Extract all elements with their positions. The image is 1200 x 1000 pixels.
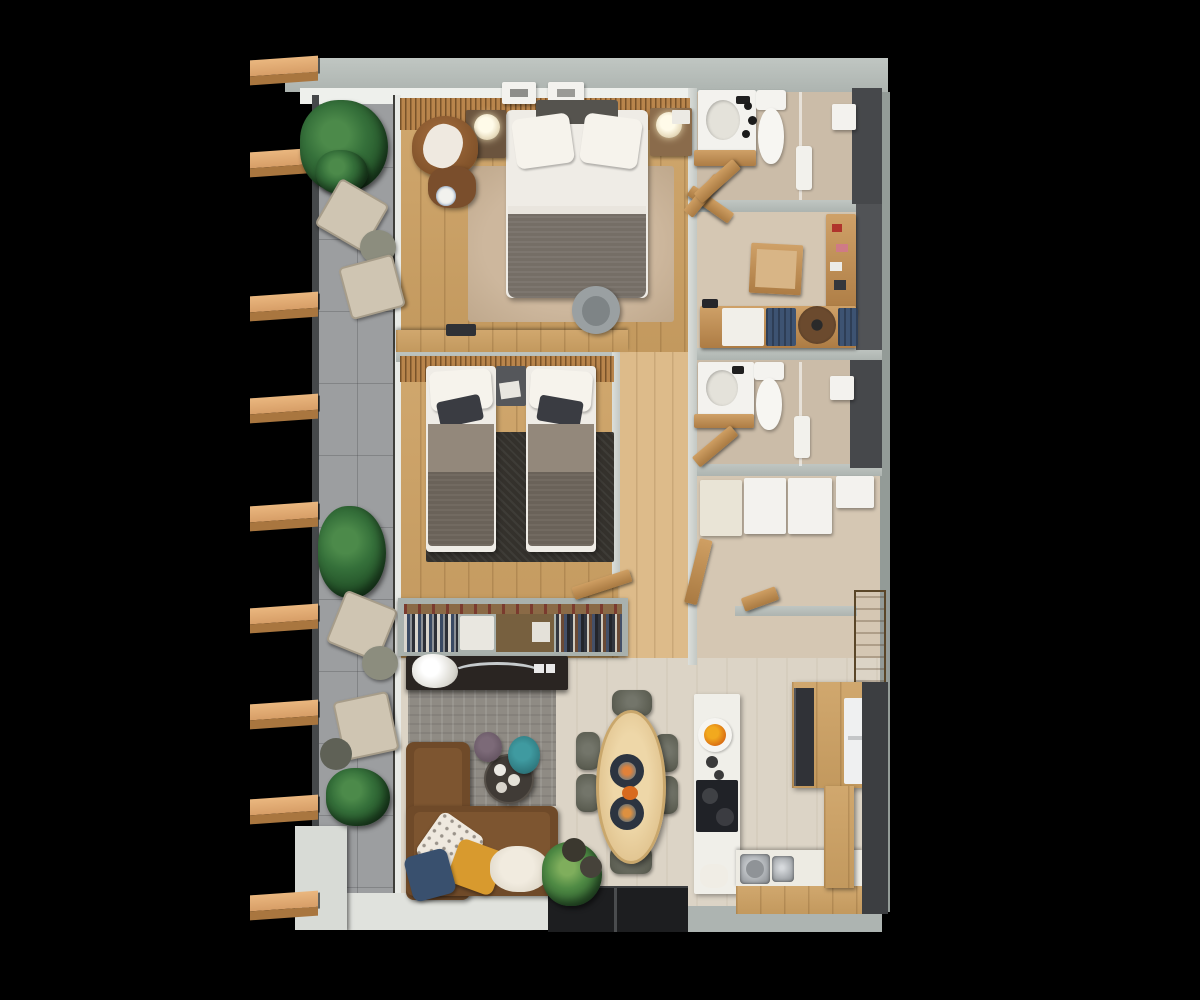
- kitchen-towel: [700, 864, 728, 888]
- balcony-louver-slat: [250, 56, 318, 77]
- wardrobe-mid-shelf: [496, 614, 554, 652]
- balcony-louver-slat: [250, 394, 318, 415]
- dressing-dark-wall: [856, 204, 882, 350]
- notepad: [672, 110, 690, 124]
- bath2-shower-fixture: [830, 376, 854, 400]
- twin-left-blanket-fold: [428, 424, 494, 476]
- master-blanket: [508, 214, 646, 298]
- burner-1: [702, 788, 718, 804]
- balcony-louver-slat: [250, 604, 318, 625]
- bath1-basin: [706, 100, 740, 140]
- balcony-table-3: [320, 738, 352, 770]
- pouf-purple: [474, 732, 502, 762]
- entry-door: [854, 590, 886, 696]
- bath1-accessory-3: [742, 130, 750, 138]
- sink-drain: [746, 860, 764, 878]
- kitchen-dark-wall: [862, 682, 888, 914]
- cooktop: [696, 780, 738, 832]
- bath2-towel-rail: [794, 416, 810, 458]
- twin-left-blanket: [428, 472, 494, 546]
- kitchen-counter-column: [824, 786, 854, 888]
- cosmetic-item-pink: [836, 244, 848, 252]
- balcony-plant-middle: [318, 506, 386, 598]
- floor-plan-render: [0, 0, 1200, 1000]
- bath2-vanity: [698, 362, 754, 416]
- closet-unit-cream: [700, 480, 742, 536]
- hallway-floor: [618, 352, 693, 665]
- bath1-toilet-bowl: [758, 108, 784, 164]
- cosmetic-item-dark: [834, 280, 846, 290]
- desk-chair-seat: [582, 296, 610, 326]
- kitchen-jar-1: [706, 756, 718, 768]
- kitchen-counter-bottom-face: [736, 886, 862, 914]
- kitchen-sink-1: [740, 854, 770, 884]
- wall-switch-2: [546, 664, 555, 673]
- bath2-basin: [706, 370, 738, 406]
- closet-unit-white-1: [744, 478, 786, 534]
- open-wardrobe: [398, 598, 628, 656]
- round-stool: [798, 306, 836, 344]
- center-dish: [622, 786, 638, 800]
- wardrobe-white-bin: [460, 616, 494, 650]
- bath2-vanity-ledge: [694, 414, 754, 428]
- fruit-pile: [704, 724, 726, 746]
- bench-cushion-1: [766, 308, 796, 346]
- bath1-toilet-tank: [756, 90, 786, 110]
- folded-items: [532, 622, 550, 642]
- bath1-shower-wall: [852, 88, 882, 204]
- fridge-handle: [848, 736, 862, 740]
- wardrobe-hanging-clothes-1: [404, 614, 458, 652]
- bath1-towel-rail: [796, 146, 812, 190]
- dining-chair-left-1: [576, 732, 600, 770]
- dinner-plate-1: [610, 754, 644, 788]
- coffee-table-vase-3: [496, 782, 507, 793]
- closet-unit-white-2: [788, 478, 832, 534]
- side-table-round: [436, 186, 456, 206]
- kitchen-jar-2: [714, 770, 724, 780]
- coffee-table-vase-2: [508, 774, 520, 786]
- cream-throw: [490, 846, 550, 892]
- table-top: [755, 249, 797, 289]
- master-pillow-right: [579, 112, 643, 170]
- food-1: [618, 762, 636, 780]
- balcony-plant-bottom: [326, 768, 390, 826]
- balcony-louver-slat: [250, 502, 318, 523]
- twin-right-blanket-fold: [528, 424, 594, 476]
- cosmetic-item-red: [832, 224, 842, 232]
- master-pillow-left: [511, 112, 575, 170]
- wall-switch-1: [534, 664, 544, 673]
- bath2-toilet-bowl: [756, 378, 782, 430]
- balcony-louver-slat: [250, 891, 318, 912]
- glass-door-frame-line: [614, 888, 617, 932]
- bath1-accessory-2: [748, 116, 757, 125]
- white-flowers: [412, 654, 458, 688]
- balcony-louver-slat: [250, 292, 318, 313]
- cosmetic-item-white: [830, 262, 842, 271]
- food-2: [618, 804, 636, 822]
- balcony-louver-slat: [250, 700, 318, 721]
- wardrobe-hanging-clothes-2: [556, 614, 622, 652]
- closet-unit-white-3: [836, 476, 874, 508]
- tv-soundbar-arc: [452, 662, 542, 683]
- oven-column: [794, 688, 814, 786]
- bath1-shower-fixture: [832, 104, 856, 130]
- left-window-wall: [393, 95, 401, 912]
- dressing-low-table: [749, 243, 804, 296]
- kitchen-sink-2: [772, 856, 794, 882]
- bath1-accessory-1: [744, 102, 752, 110]
- top-exterior-wall: [285, 58, 888, 92]
- balcony-table-2: [362, 646, 398, 680]
- bath2-shower-wall: [850, 360, 882, 468]
- nightstand-papers: [499, 381, 521, 400]
- burner-2: [716, 808, 734, 826]
- frame-art: [557, 89, 575, 97]
- wardrobe-top-shelf: [404, 604, 622, 614]
- picture-frame-1: [502, 82, 536, 104]
- coffee-table-vase-1: [494, 764, 506, 776]
- pouf-teal: [508, 736, 540, 774]
- cosmetics-shelf: [826, 214, 856, 314]
- bench-cushion-2: [838, 308, 858, 346]
- dinner-plate-2: [610, 796, 644, 830]
- laptop: [446, 324, 476, 336]
- twin-right-blanket: [528, 472, 594, 546]
- balcony-louver-slat: [250, 795, 318, 816]
- shoes-pair: [702, 299, 718, 308]
- table-lamp-left: [474, 114, 500, 140]
- dressing-bath2-wall: [697, 348, 882, 360]
- bath2-faucet: [732, 366, 744, 374]
- frame-art: [510, 89, 528, 97]
- bench-white-cabinet: [722, 308, 764, 346]
- plant-pot-2: [580, 856, 602, 878]
